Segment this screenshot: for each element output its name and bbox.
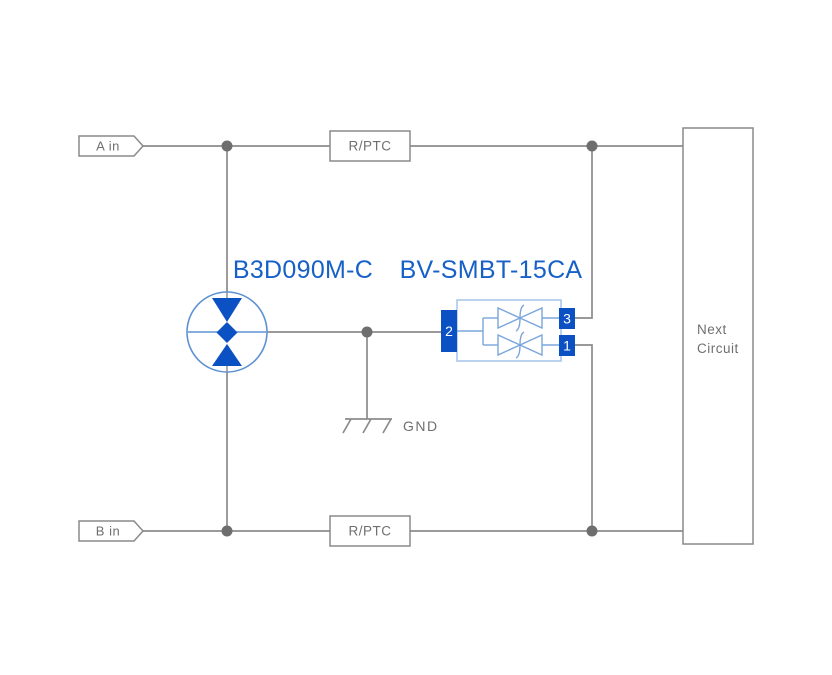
tvs-pin1-number: 1 xyxy=(563,338,571,354)
junction-dot xyxy=(222,141,233,152)
tvs-array: 2 3 1 xyxy=(441,300,575,361)
gas-discharge-tube xyxy=(187,292,267,372)
input-connector-a: A in xyxy=(79,136,143,156)
tvs-part-number: BV-SMBT-15CA xyxy=(400,256,583,284)
wire-pin3-up xyxy=(575,146,592,318)
ground-slash-1 xyxy=(343,419,351,433)
ground-label: GND xyxy=(403,418,439,434)
wire-pin1-down xyxy=(575,345,592,531)
junction-dot xyxy=(587,141,598,152)
chassis-ground-icon xyxy=(343,419,392,433)
fuse-bottom-label: R/PTC xyxy=(349,524,392,539)
input-connector-b: B in xyxy=(79,521,143,541)
junction-dot xyxy=(222,526,233,537)
fuse-top-label: R/PTC xyxy=(349,139,392,154)
tvs-pin2-number: 2 xyxy=(445,323,453,339)
input-a-label: A in xyxy=(96,139,120,154)
junction-dot xyxy=(587,526,598,537)
gdt-part-number: B3D090M-C xyxy=(233,256,373,284)
fuse-top: R/PTC xyxy=(330,131,410,161)
next-circuit-label-line2: Circuit xyxy=(697,341,739,356)
input-b-label: B in xyxy=(96,524,120,539)
circuit-diagram: A in B in R/PTC R/PTC Next Circuit GND B… xyxy=(0,0,832,675)
next-circuit-block: Next Circuit xyxy=(683,128,753,544)
ground-slash-2 xyxy=(363,419,371,433)
fuse-bottom: R/PTC xyxy=(330,516,410,546)
next-circuit-label-line1: Next xyxy=(697,322,727,337)
ground-slash-3 xyxy=(383,419,391,433)
schematic-page: A in B in R/PTC R/PTC Next Circuit GND B… xyxy=(0,0,832,675)
junction-dot xyxy=(362,327,373,338)
tvs-pin3-number: 3 xyxy=(563,311,571,327)
